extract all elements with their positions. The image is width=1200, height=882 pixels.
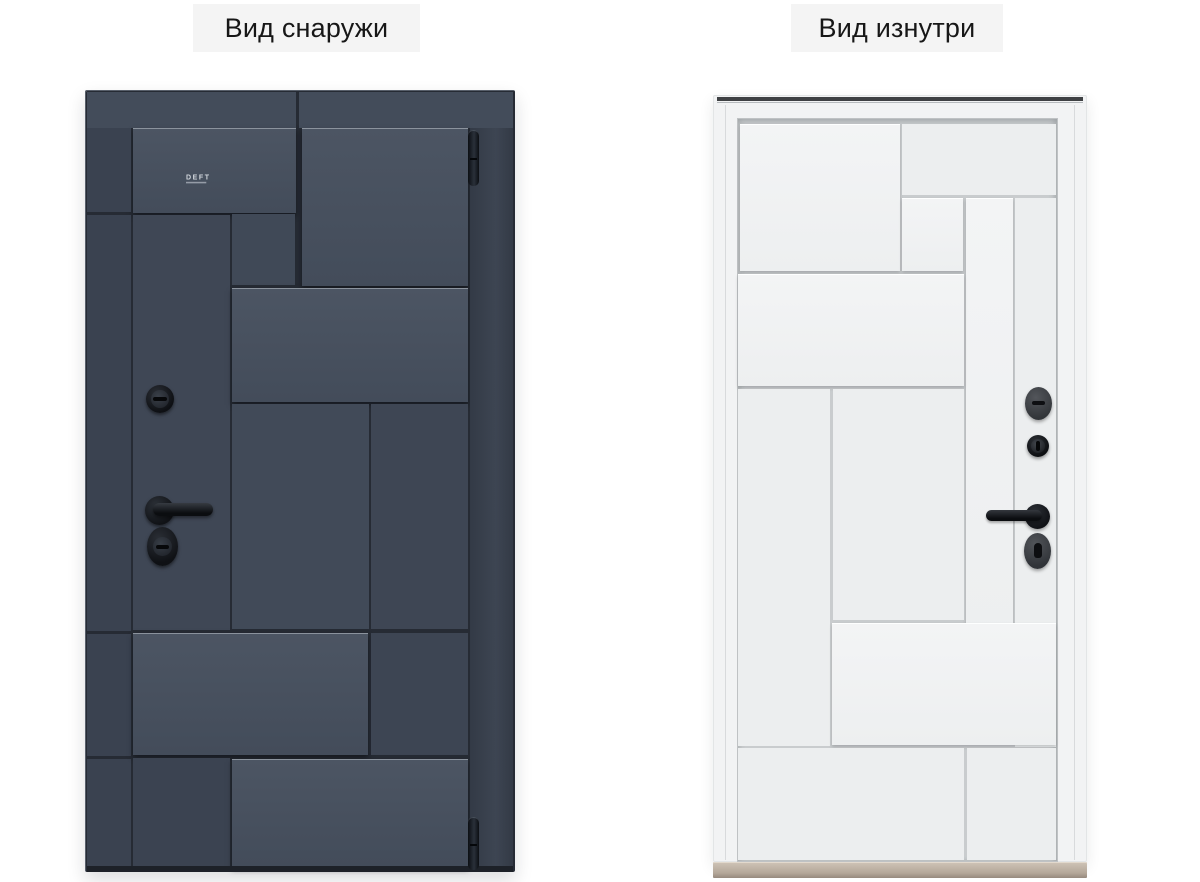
door-panel xyxy=(902,124,1056,195)
door-panel xyxy=(967,748,1056,860)
door-panel-lock-column xyxy=(133,215,230,630)
door-hinge-stile xyxy=(470,128,513,866)
hinge-top-icon xyxy=(468,130,479,186)
door-panel xyxy=(133,758,230,867)
exterior-door-image: DEFT xyxy=(85,90,515,872)
door-panel xyxy=(966,198,1013,630)
door-panel xyxy=(738,389,830,746)
door-panel xyxy=(371,633,468,755)
door-panel xyxy=(833,389,964,620)
keyhole-escutcheon-icon xyxy=(1024,533,1051,569)
door-panel xyxy=(232,288,468,402)
door-panel xyxy=(232,214,295,285)
door-bottom-edge xyxy=(87,866,513,872)
door-panel xyxy=(738,274,964,386)
door-panel xyxy=(740,124,900,271)
escutcheon-slot xyxy=(156,545,169,549)
door-panel xyxy=(299,92,513,128)
door-panel xyxy=(232,404,369,629)
label-outside-text: Вид снаружи xyxy=(225,13,389,44)
door-panel-brand: DEFT xyxy=(133,128,296,213)
door-panel xyxy=(87,92,296,128)
door-stile xyxy=(87,128,131,212)
lock-cylinder-icon xyxy=(146,385,174,413)
door-stile xyxy=(87,215,131,631)
door-handle-icon xyxy=(153,503,213,516)
night-latch-knob-icon xyxy=(1027,435,1049,457)
door-panel xyxy=(302,128,468,286)
door-leaf xyxy=(737,118,1058,862)
deadbolt-thumbturn-icon xyxy=(1025,387,1052,420)
door-threshold xyxy=(713,862,1087,878)
knob-slot xyxy=(1036,441,1040,451)
label-inside-view: Вид изнутри xyxy=(791,4,1003,52)
door-panel xyxy=(371,404,468,629)
keyhole-slot xyxy=(1034,543,1042,558)
door-views-comparison: Вид снаружи Вид изнутри DEFT xyxy=(0,0,1200,882)
frame-top-line xyxy=(717,102,1083,103)
frame-top-strip xyxy=(717,97,1083,101)
hinge-bottom-icon xyxy=(468,817,479,870)
door-panel xyxy=(902,198,963,271)
frame-jamb-line xyxy=(1074,105,1075,860)
lock-cylinder-slot xyxy=(153,397,167,401)
door-panel xyxy=(738,748,964,860)
door-stile xyxy=(87,634,131,756)
door-panel xyxy=(232,759,468,867)
label-inside-text: Вид изнутри xyxy=(819,13,976,44)
door-panel xyxy=(832,623,1056,745)
frame-jamb-line xyxy=(725,105,726,860)
door-panel xyxy=(133,633,368,755)
label-outside-view: Вид снаружи xyxy=(193,4,420,52)
door-handle-icon xyxy=(986,510,1042,521)
door-frame xyxy=(713,95,1087,862)
interior-door-image xyxy=(713,95,1087,878)
door-stile xyxy=(87,759,131,866)
brand-logo: DEFT xyxy=(186,174,211,183)
keyhole-escutcheon-icon xyxy=(147,527,178,566)
thumbturn-slot xyxy=(1032,401,1045,405)
